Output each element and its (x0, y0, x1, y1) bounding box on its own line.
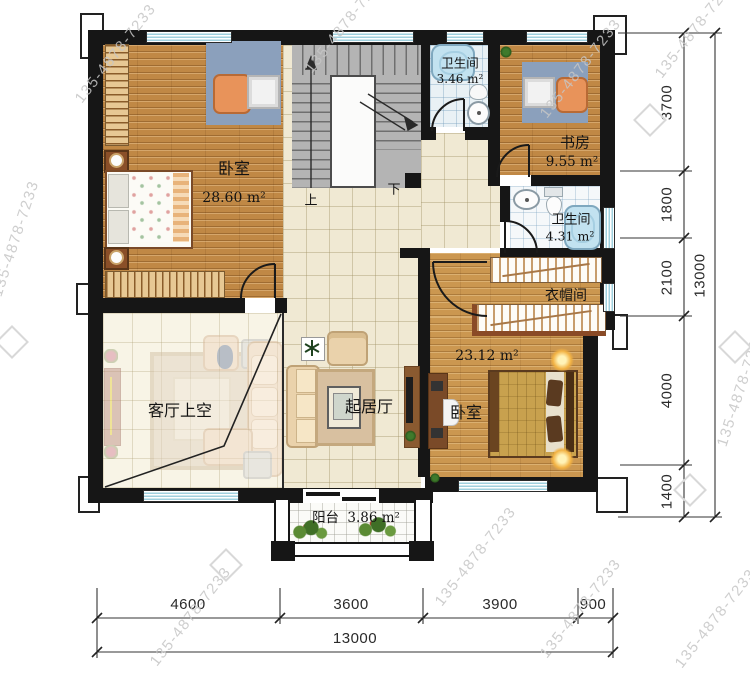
window (603, 283, 615, 312)
balcony-side-wall (414, 498, 432, 546)
bedside-lamp (550, 348, 574, 372)
watermark: 135-4878-7233 (147, 563, 235, 669)
balcony-railing (287, 542, 417, 557)
window (603, 207, 615, 249)
desk-monitor (431, 428, 443, 438)
watermark: 135-4878-7233 (0, 178, 42, 299)
floor-plan-canvas: 卧室 28.60 m² 卫生间 3.46 m² 书房 9.55 m² 卫生间 4… (0, 0, 750, 679)
wall (421, 30, 430, 140)
study-area: 9.55 m² (546, 154, 599, 170)
wall (88, 30, 103, 503)
wall (275, 298, 287, 313)
bedroom-bottom-area: 23.12 m² (455, 348, 518, 364)
bedroom-top-label: 卧室 (218, 155, 250, 179)
wall (488, 30, 500, 178)
bed (105, 170, 193, 249)
wall (405, 173, 421, 188)
balcony-pillar (409, 541, 434, 561)
bath-top-label: 卫生间 (441, 53, 479, 72)
plant-box (301, 337, 325, 361)
sink (513, 189, 540, 210)
balcony-name: 阳台 (312, 510, 339, 526)
watermark-diamond (0, 325, 29, 359)
dim-bottom-total: 13000 (315, 630, 395, 647)
stair-treads-right (372, 75, 421, 150)
stair-up-label: 上 (304, 190, 317, 209)
cloakroom-label: 衣帽间 (545, 285, 587, 305)
void-edge (282, 313, 284, 488)
wall (488, 175, 500, 186)
window (526, 31, 588, 43)
desk-monitor (431, 381, 443, 391)
balcony-label: 阳台 3.86 m² (312, 506, 400, 526)
bath-mid-label: 卫生间 (551, 209, 590, 228)
sitting-room-label: 起居厅 (345, 393, 393, 417)
tv (406, 377, 413, 423)
hanging-rack (490, 257, 602, 283)
wardrobe (105, 271, 225, 298)
wall (531, 175, 607, 186)
pier-marker (596, 477, 628, 513)
toilet (469, 84, 488, 100)
stair-treads-left (292, 75, 330, 188)
wall (430, 127, 436, 140)
sliding-door (303, 489, 379, 503)
bedside-lamp (550, 447, 574, 471)
watermark: 135-4878-7233 (672, 565, 750, 671)
wall (583, 317, 598, 492)
stair-void (330, 75, 376, 188)
bedroom-bottom-label: 卧室 (450, 399, 482, 423)
bedroom-top-area: 28.60 m² (202, 190, 265, 206)
dim-right-total: 13000 (692, 246, 709, 306)
plant (500, 46, 512, 58)
dresser (247, 75, 280, 109)
living-void-label: 客厅上空 (148, 397, 212, 421)
balcony-pillar (271, 541, 295, 561)
wall (88, 488, 433, 503)
desk-chair (213, 74, 251, 114)
bed (488, 370, 578, 458)
watermark-diamond (673, 473, 707, 507)
bath-mid-area: 4.31 m² (546, 229, 595, 244)
wall (500, 186, 510, 222)
bath-top-area: 3.46 m² (437, 72, 484, 86)
stair-down-label: 下 (387, 179, 400, 198)
sink (467, 101, 490, 125)
dim-right-3: 4000 (659, 361, 676, 421)
armchair (327, 331, 368, 366)
hanging-rack (472, 304, 606, 336)
pillow (546, 379, 564, 406)
wall (88, 298, 245, 313)
watermark: 135-4878-7233 (652, 0, 740, 82)
dim-right-2: 2100 (659, 248, 676, 308)
window (446, 31, 484, 43)
window (146, 31, 232, 43)
pillow (546, 415, 564, 442)
watermark: 135-4878-7233 (432, 503, 520, 609)
study-label: 书房 (560, 132, 590, 153)
dim-right-4: 1400 (659, 462, 676, 522)
plant (430, 473, 440, 483)
dim-bottom-1: 3600 (311, 596, 391, 613)
window (458, 480, 548, 492)
balcony-area: 3.86 m² (347, 510, 400, 526)
dim-bottom-2: 3900 (460, 596, 540, 613)
plant (405, 430, 416, 442)
dim-right-1: 1800 (659, 175, 676, 235)
window (143, 490, 239, 502)
pillow (108, 174, 129, 208)
pillow (108, 210, 129, 244)
